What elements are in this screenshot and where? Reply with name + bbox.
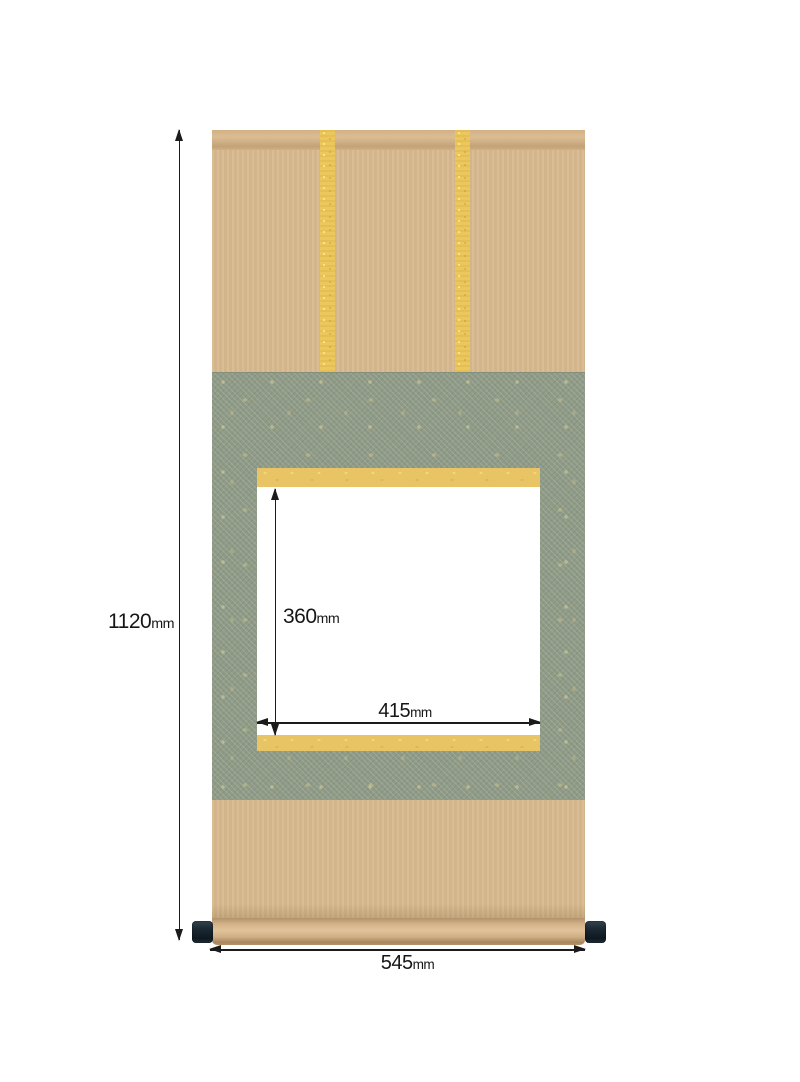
hanging-rod-shading bbox=[212, 130, 585, 150]
total-width-unit: mm bbox=[413, 957, 435, 972]
artwork-width-value: 415 bbox=[378, 700, 410, 722]
scroll-top-fabric bbox=[212, 130, 585, 372]
total-height-label: 1120mm bbox=[90, 611, 174, 632]
artwork-height-value: 360 bbox=[283, 605, 317, 628]
artwork-height-unit: mm bbox=[317, 611, 340, 627]
roller-shadow bbox=[212, 904, 585, 918]
total-height-value: 1120 bbox=[108, 610, 151, 633]
total-height-unit: mm bbox=[151, 616, 174, 632]
total-width-dimension-arrow bbox=[210, 949, 585, 951]
roller-end-cap-left bbox=[192, 921, 213, 943]
artwork-width-label: 415mm bbox=[340, 701, 470, 721]
artwork-height-dimension-arrow bbox=[275, 489, 277, 735]
roller-end-cap-right bbox=[585, 921, 606, 943]
futai-strip-left bbox=[320, 130, 335, 372]
futai-strip-right bbox=[455, 130, 470, 372]
artwork-height-label: 360mm bbox=[283, 606, 339, 627]
artwork-width-dimension-arrow bbox=[257, 722, 540, 724]
total-height-dimension-arrow bbox=[179, 130, 181, 940]
total-width-value: 545 bbox=[381, 952, 413, 974]
ichimonji-gold-strip-bottom bbox=[257, 735, 540, 751]
roller-bar bbox=[212, 918, 585, 945]
total-width-label: 545mm bbox=[340, 953, 475, 973]
scroll-bottom-fabric bbox=[212, 800, 585, 918]
ichimonji-gold-strip-top bbox=[257, 468, 540, 487]
artwork-width-unit: mm bbox=[410, 705, 432, 720]
scroll-dimension-diagram: 1120mm 360mm 415mm 545mm bbox=[0, 0, 800, 1082]
